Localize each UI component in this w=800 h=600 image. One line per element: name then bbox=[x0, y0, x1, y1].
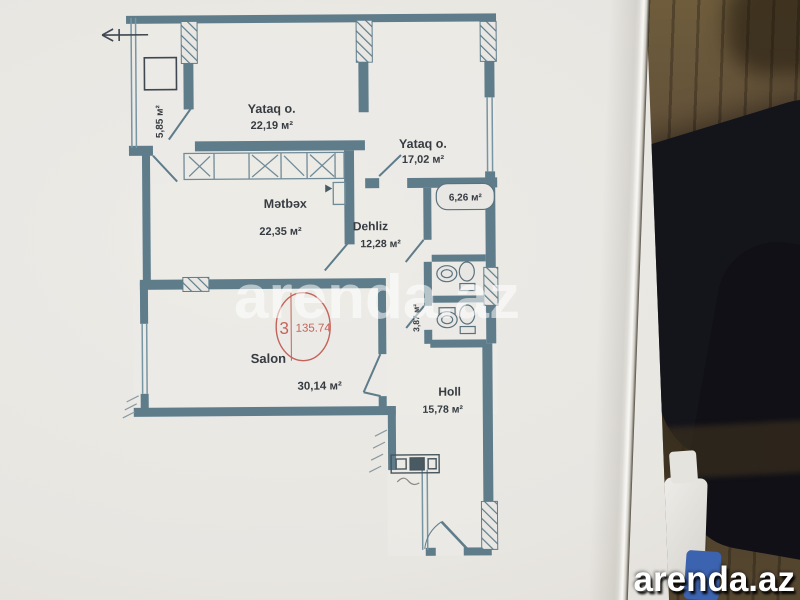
label-hall-area: 15,78 м² bbox=[422, 404, 463, 416]
label-salon-name: Salon bbox=[251, 351, 287, 366]
label-balcony-area: 5,85 м² bbox=[155, 104, 166, 138]
label-bedroom2-area: 17,02 м² bbox=[402, 154, 445, 166]
label-kitchen-area: 22,35 м² bbox=[259, 226, 302, 238]
label-bedroom2-name: Yataq o. bbox=[399, 137, 447, 151]
label-bedroom1-area: 22,19 м² bbox=[251, 120, 294, 132]
label-salon-area: 30,14 м² bbox=[297, 380, 342, 392]
label-hallway-area: 12,28 м² bbox=[360, 238, 401, 250]
label-hall-name: Holl bbox=[438, 385, 461, 399]
watermark-center: arenda.az bbox=[234, 262, 520, 333]
label-kitchen-name: Mətbəx bbox=[264, 197, 307, 211]
label-hallway-name: Dehliz bbox=[353, 219, 388, 233]
watermark-corner: arenda.az bbox=[634, 560, 795, 600]
floorplan-photo: 3 135.74 Yataq o. 22,19 м² Yataq o. 17,0… bbox=[0, 0, 800, 600]
label-bathroom-area: 6,26 м² bbox=[449, 192, 483, 203]
label-bedroom1-name: Yataq o. bbox=[248, 102, 296, 116]
white-plastic-object bbox=[669, 450, 698, 484]
